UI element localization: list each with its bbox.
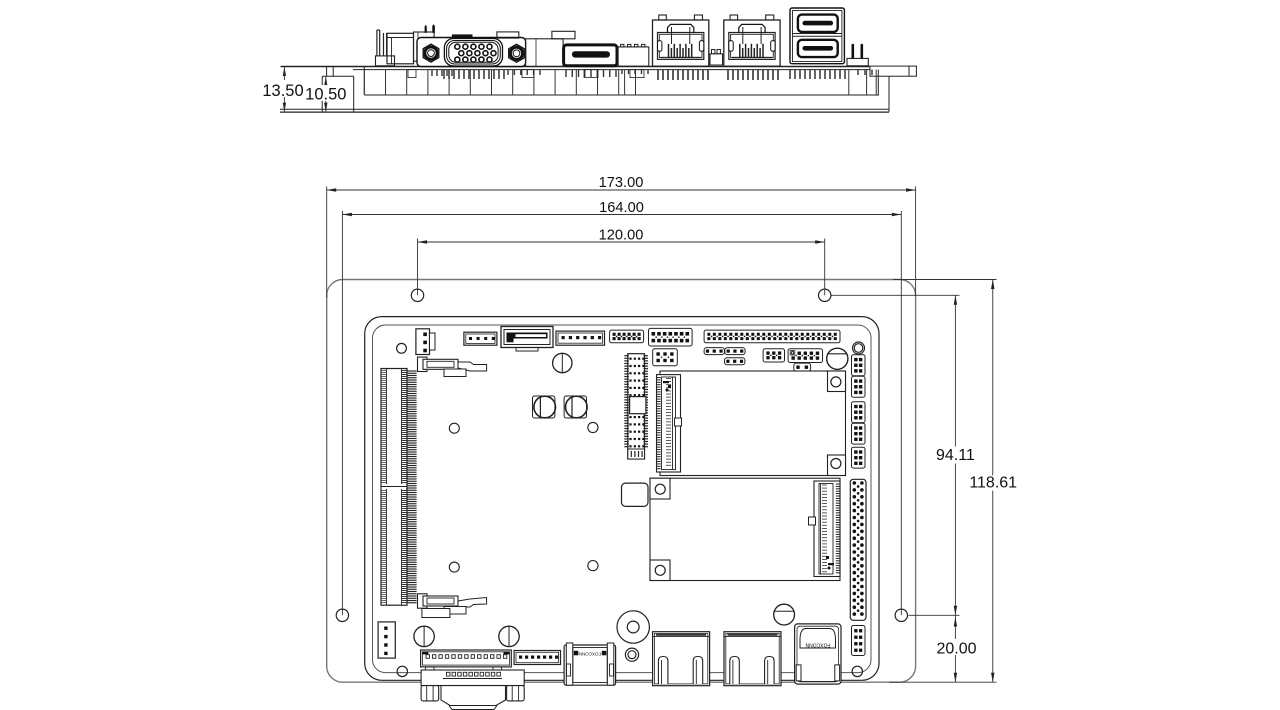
svg-text:164.00: 164.00 — [599, 200, 644, 216]
svg-text:120.00: 120.00 — [599, 228, 644, 244]
svg-text:118.61: 118.61 — [969, 475, 1017, 492]
svg-text:173.00: 173.00 — [599, 175, 644, 191]
svg-text:94.11: 94.11 — [936, 447, 975, 464]
svg-text:FOXCONN: FOXCONN — [579, 652, 602, 657]
svg-text:20.00: 20.00 — [936, 641, 976, 658]
svg-text:13.50: 13.50 — [262, 82, 303, 100]
svg-text:FOXCONN: FOXCONN — [805, 642, 830, 648]
svg-text:10.50: 10.50 — [305, 86, 346, 104]
